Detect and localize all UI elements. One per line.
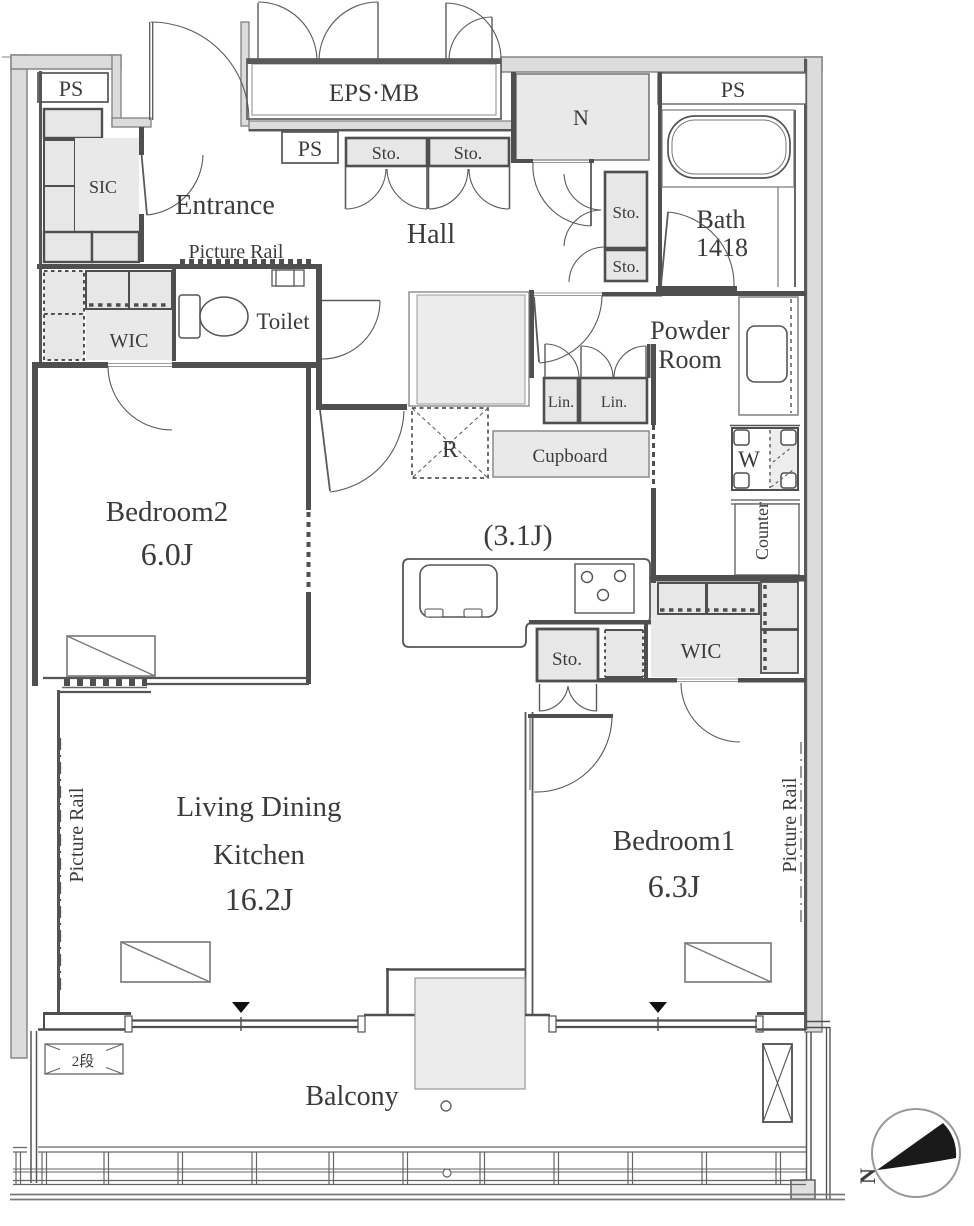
svg-text:Toilet: Toilet [256, 309, 310, 334]
svg-text:Living Dining: Living Dining [176, 791, 341, 823]
svg-text:Cupboard: Cupboard [533, 446, 608, 467]
svg-text:PS: PS [298, 136, 322, 161]
svg-text:Sto.: Sto. [613, 257, 640, 276]
svg-text:Bedroom2: Bedroom2 [106, 496, 228, 528]
svg-text:Hall: Hall [407, 219, 455, 250]
svg-text:Sto.: Sto. [552, 649, 582, 670]
svg-text:PS: PS [721, 77, 745, 102]
svg-text:Balcony: Balcony [305, 1081, 398, 1112]
svg-text:Picture Rail: Picture Rail [189, 241, 284, 263]
svg-text:Sto.: Sto. [454, 143, 483, 163]
svg-text:Bedroom1: Bedroom1 [613, 825, 735, 857]
svg-text:(3.1J): (3.1J) [483, 519, 552, 552]
svg-text:6.3J: 6.3J [648, 868, 700, 904]
svg-text:Lin.: Lin. [601, 394, 627, 411]
svg-text:Picture Rail: Picture Rail [66, 787, 88, 882]
svg-text:R: R [442, 437, 458, 463]
svg-text:Bath: Bath [696, 205, 745, 234]
svg-text:Sto.: Sto. [372, 143, 401, 163]
svg-text:Entrance: Entrance [175, 190, 275, 221]
svg-text:2段: 2段 [72, 1053, 95, 1070]
svg-text:Counter: Counter [752, 502, 772, 560]
svg-text:1418: 1418 [696, 233, 748, 262]
svg-text:Kitchen: Kitchen [213, 839, 305, 871]
svg-text:Powder: Powder [650, 316, 730, 345]
svg-text:Picture Rail: Picture Rail [779, 777, 801, 872]
svg-text:N: N [573, 105, 589, 130]
svg-text:PS: PS [59, 76, 83, 101]
svg-text:N: N [855, 1168, 880, 1184]
svg-text:16.2J: 16.2J [225, 881, 293, 917]
svg-text:SIC: SIC [89, 177, 117, 197]
svg-text:Room: Room [658, 345, 722, 374]
svg-text:WIC: WIC [110, 330, 149, 352]
svg-text:6.0J: 6.0J [141, 536, 193, 572]
svg-text:EPS·MB: EPS·MB [329, 80, 419, 107]
svg-text:WIC: WIC [681, 639, 722, 663]
svg-text:W: W [738, 447, 760, 472]
svg-text:Lin.: Lin. [548, 394, 574, 411]
svg-text:Sto.: Sto. [613, 203, 640, 222]
